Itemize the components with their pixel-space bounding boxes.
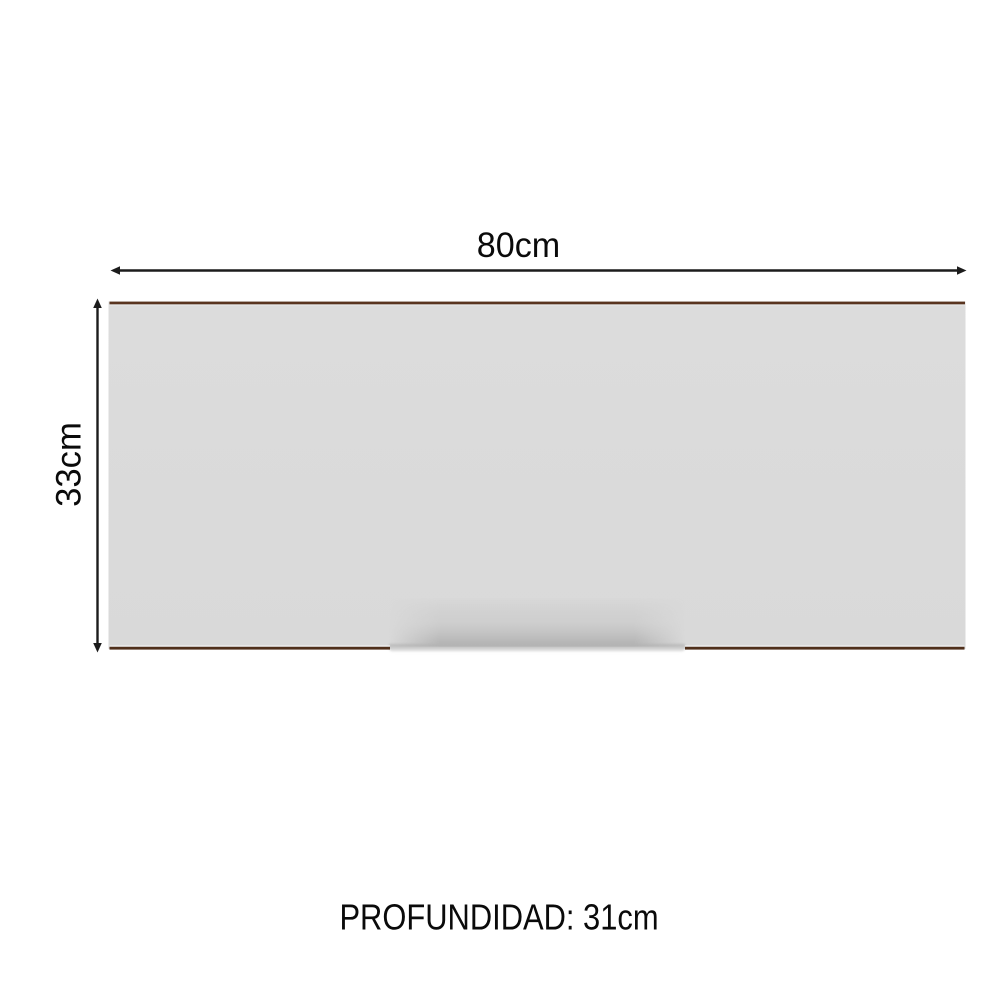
svg-text:80cm: 80cm — [477, 227, 560, 265]
svg-text:PROFUNDIDAD: 31cm: PROFUNDIDAD: 31cm — [339, 898, 658, 938]
svg-text:33cm: 33cm — [49, 422, 88, 507]
